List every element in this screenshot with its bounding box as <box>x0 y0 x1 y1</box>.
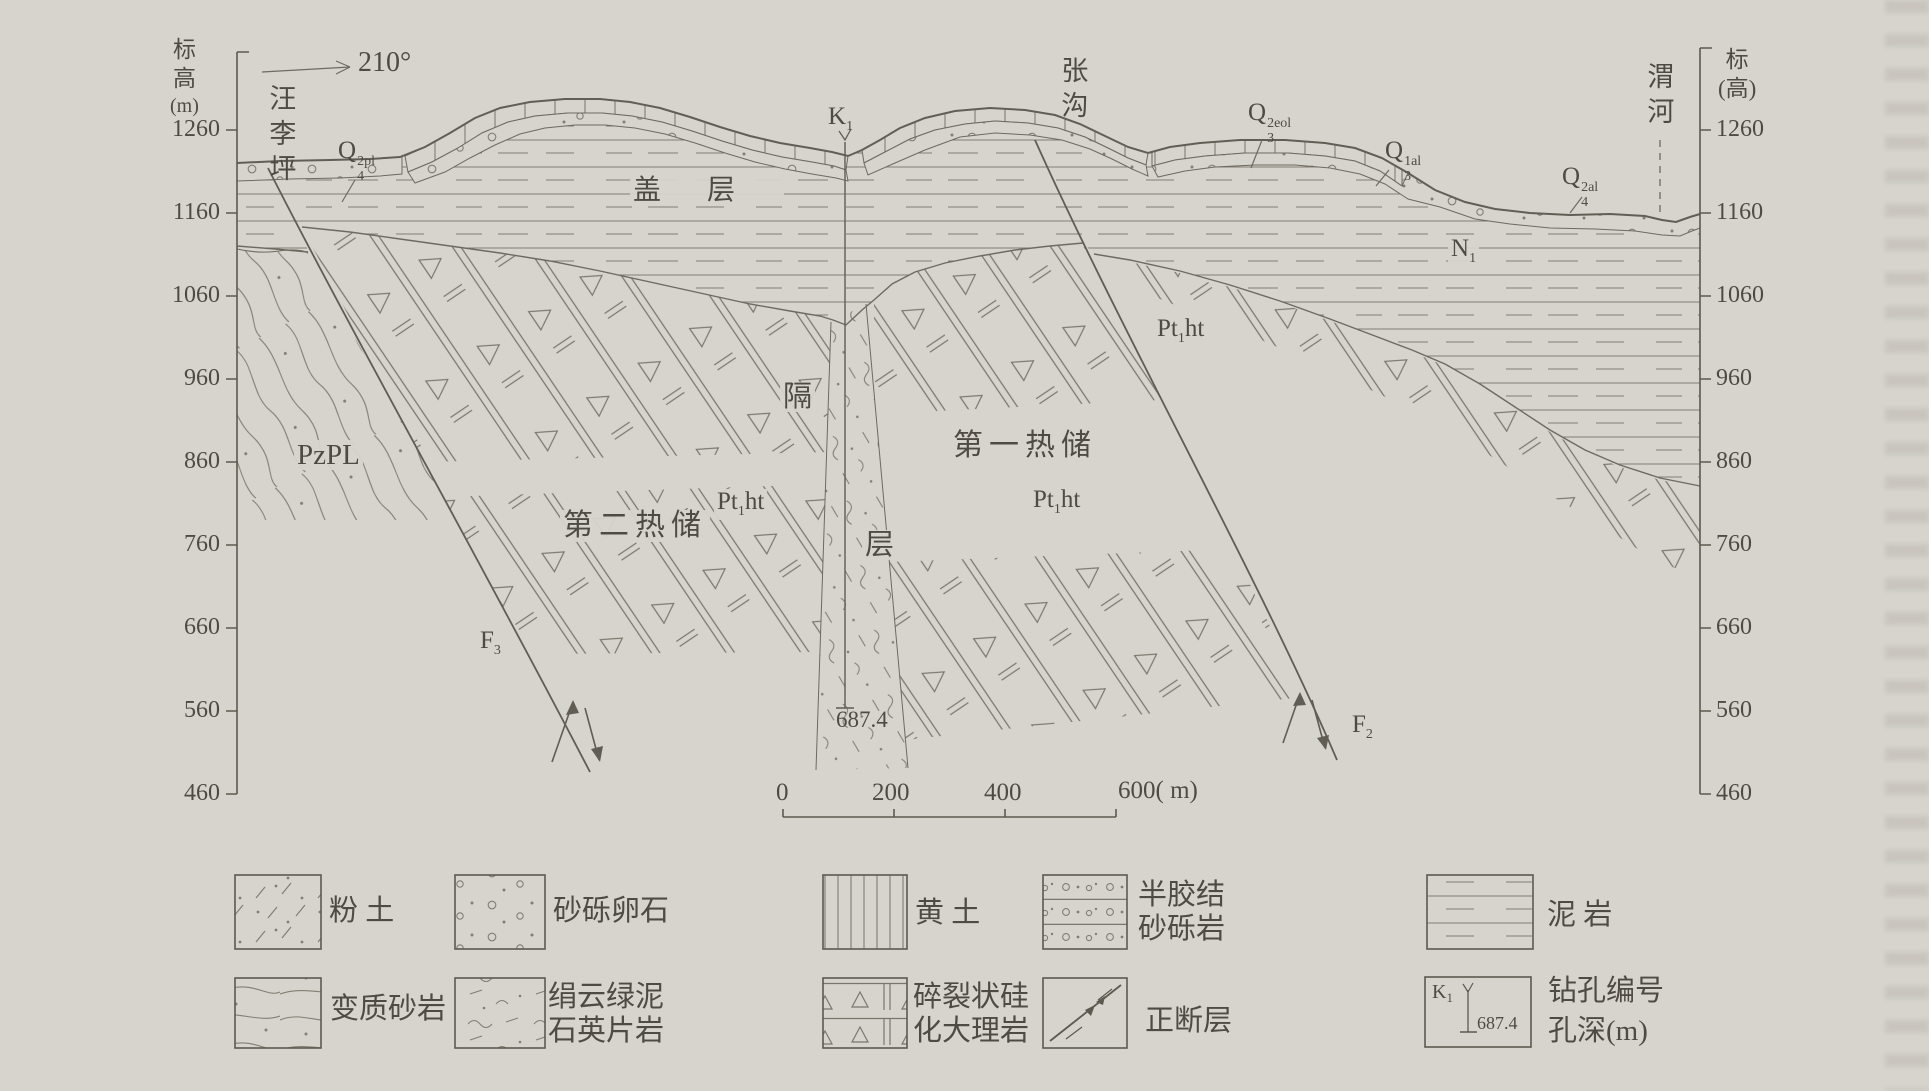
legend-label-mudstone: 泥 岩 <box>1547 900 1612 930</box>
right-tick-760: 760 <box>1716 532 1752 557</box>
legend-label-normal-fault: 正断层 <box>1145 1006 1232 1036</box>
label-q4-2al: Q2al4 <box>1562 164 1598 210</box>
label-cover-layer: 盖层 <box>630 176 784 205</box>
label-fault-f3: F3 <box>480 628 501 659</box>
place-zhanggou: 张沟 <box>1058 56 1086 126</box>
legend-label-semi-cemented: 半胶结 砂砾岩 <box>1138 880 1225 945</box>
bearing-label: 210° <box>358 48 411 77</box>
legend-label-schist: 绢云绿泥 石英片岩 <box>548 982 664 1047</box>
legend-label-silt: 粉 土 <box>329 896 394 926</box>
label-aquitard-char1: 隔 <box>780 382 815 412</box>
label-second-reservoir: 第二热储 <box>560 510 710 542</box>
right-tick-1160: 1160 <box>1716 200 1763 225</box>
left-tick-960: 960 <box>158 366 220 391</box>
right-tick-860: 860 <box>1716 449 1752 474</box>
label-fault-f2: F2 <box>1352 712 1373 743</box>
legend-label-meta-sandstone: 变质砂岩 <box>330 994 446 1024</box>
left-tick-1260: 1260 <box>158 117 220 142</box>
left-tick-760: 760 <box>158 532 220 557</box>
scale-tick-200: 200 <box>872 780 910 806</box>
label-q4-2pl: Q2pl4 <box>338 138 375 184</box>
left-axis-title: 标 高 (m) <box>170 36 199 119</box>
right-axis-title: 标 (高) <box>1718 46 1756 104</box>
legend-k1-symbol-id: K1 <box>1432 982 1453 1005</box>
right-tick-1060: 1060 <box>1716 283 1764 308</box>
right-tick-560: 560 <box>1716 698 1752 723</box>
label-pt1ht-first: Pt1ht <box>1030 487 1083 518</box>
scale-tick-0: 0 <box>776 780 789 806</box>
left-tick-560: 560 <box>158 698 220 723</box>
scale-tick-400: 400 <box>984 780 1022 806</box>
left-tick-860: 860 <box>158 449 220 474</box>
label-q3-1al: Q1al3 <box>1385 138 1421 184</box>
legend-k1-symbol-depth: 687.4 <box>1477 1014 1518 1033</box>
legend-label-hole-depth: 孔深(m) <box>1548 1016 1648 1046</box>
legend-label-borehole-no: 钻孔编号 <box>1548 976 1664 1006</box>
right-elevation-axis <box>1700 48 1712 794</box>
left-tick-1160: 1160 <box>158 200 220 225</box>
legend-label-loess: 黄 土 <box>915 898 980 928</box>
label-pzpl: PzPL <box>294 440 363 470</box>
label-q3-2eol: Q2eol3 <box>1248 100 1291 146</box>
legend-label-marble: 碎裂状硅 化大理岩 <box>913 982 1029 1047</box>
scan-bleed-artifact <box>1885 0 1929 1091</box>
label-k1: K1 <box>828 104 853 135</box>
label-aquitard-char2: 层 <box>862 530 897 560</box>
place-wanglipíng: 汪李坪 <box>266 84 294 189</box>
label-pt1ht-second: Pt1ht <box>714 489 767 520</box>
scale-tick-600: 600( m) <box>1118 778 1198 804</box>
bearing-arrow <box>262 61 350 74</box>
scanned-geological-cross-section-page: 标 高 (m) 标 (高) 1260 1160 1060 960 860 760… <box>0 0 1929 1091</box>
label-first-reservoir: 第一热储 <box>950 430 1100 462</box>
label-pt1ht-east: Pt1ht <box>1154 316 1207 347</box>
left-tick-660: 660 <box>158 615 220 640</box>
place-weihe: 渭河 <box>1644 62 1672 132</box>
left-tick-1060: 1060 <box>158 283 220 308</box>
right-tick-960: 960 <box>1716 366 1752 391</box>
legend-label-sand-gravel-pebble: 砂砾卵石 <box>553 896 669 926</box>
label-n1: N1 <box>1448 236 1479 267</box>
label-borehole-depth: 687.4 <box>836 708 888 732</box>
left-tick-460: 460 <box>158 781 220 806</box>
right-tick-660: 660 <box>1716 615 1752 640</box>
right-tick-460: 460 <box>1716 781 1752 806</box>
scale-bar <box>783 809 1116 817</box>
right-tick-1260: 1260 <box>1716 117 1764 142</box>
